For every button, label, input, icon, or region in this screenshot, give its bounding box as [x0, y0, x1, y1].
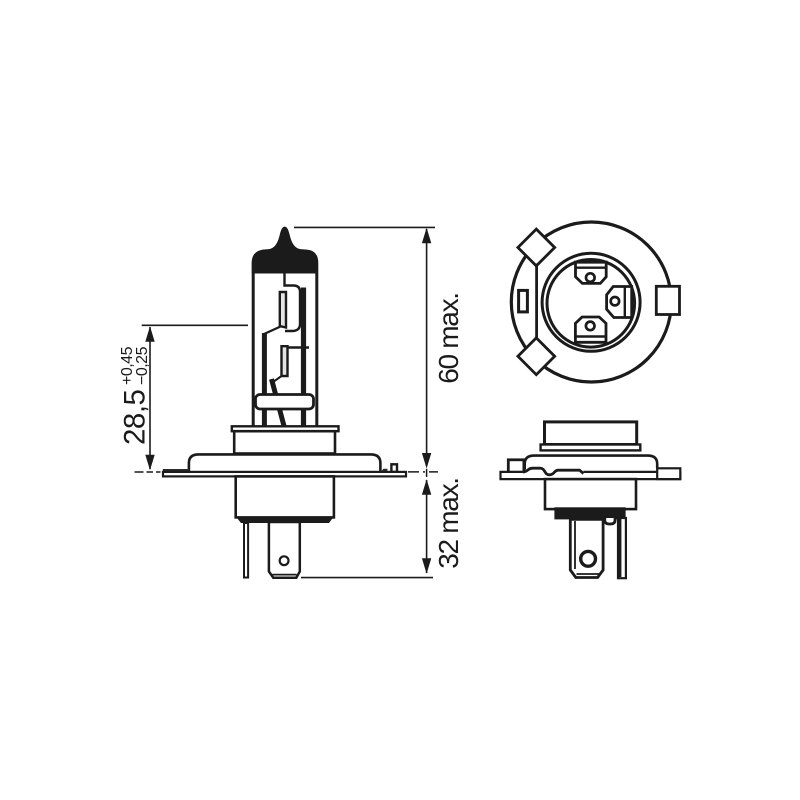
svg-text:−0,25: −0,25: [134, 346, 151, 385]
svg-text:28,5: 28,5: [118, 389, 151, 445]
svg-text:32 max.: 32 max.: [433, 478, 464, 569]
svg-text:60 max.: 60 max.: [433, 293, 464, 384]
